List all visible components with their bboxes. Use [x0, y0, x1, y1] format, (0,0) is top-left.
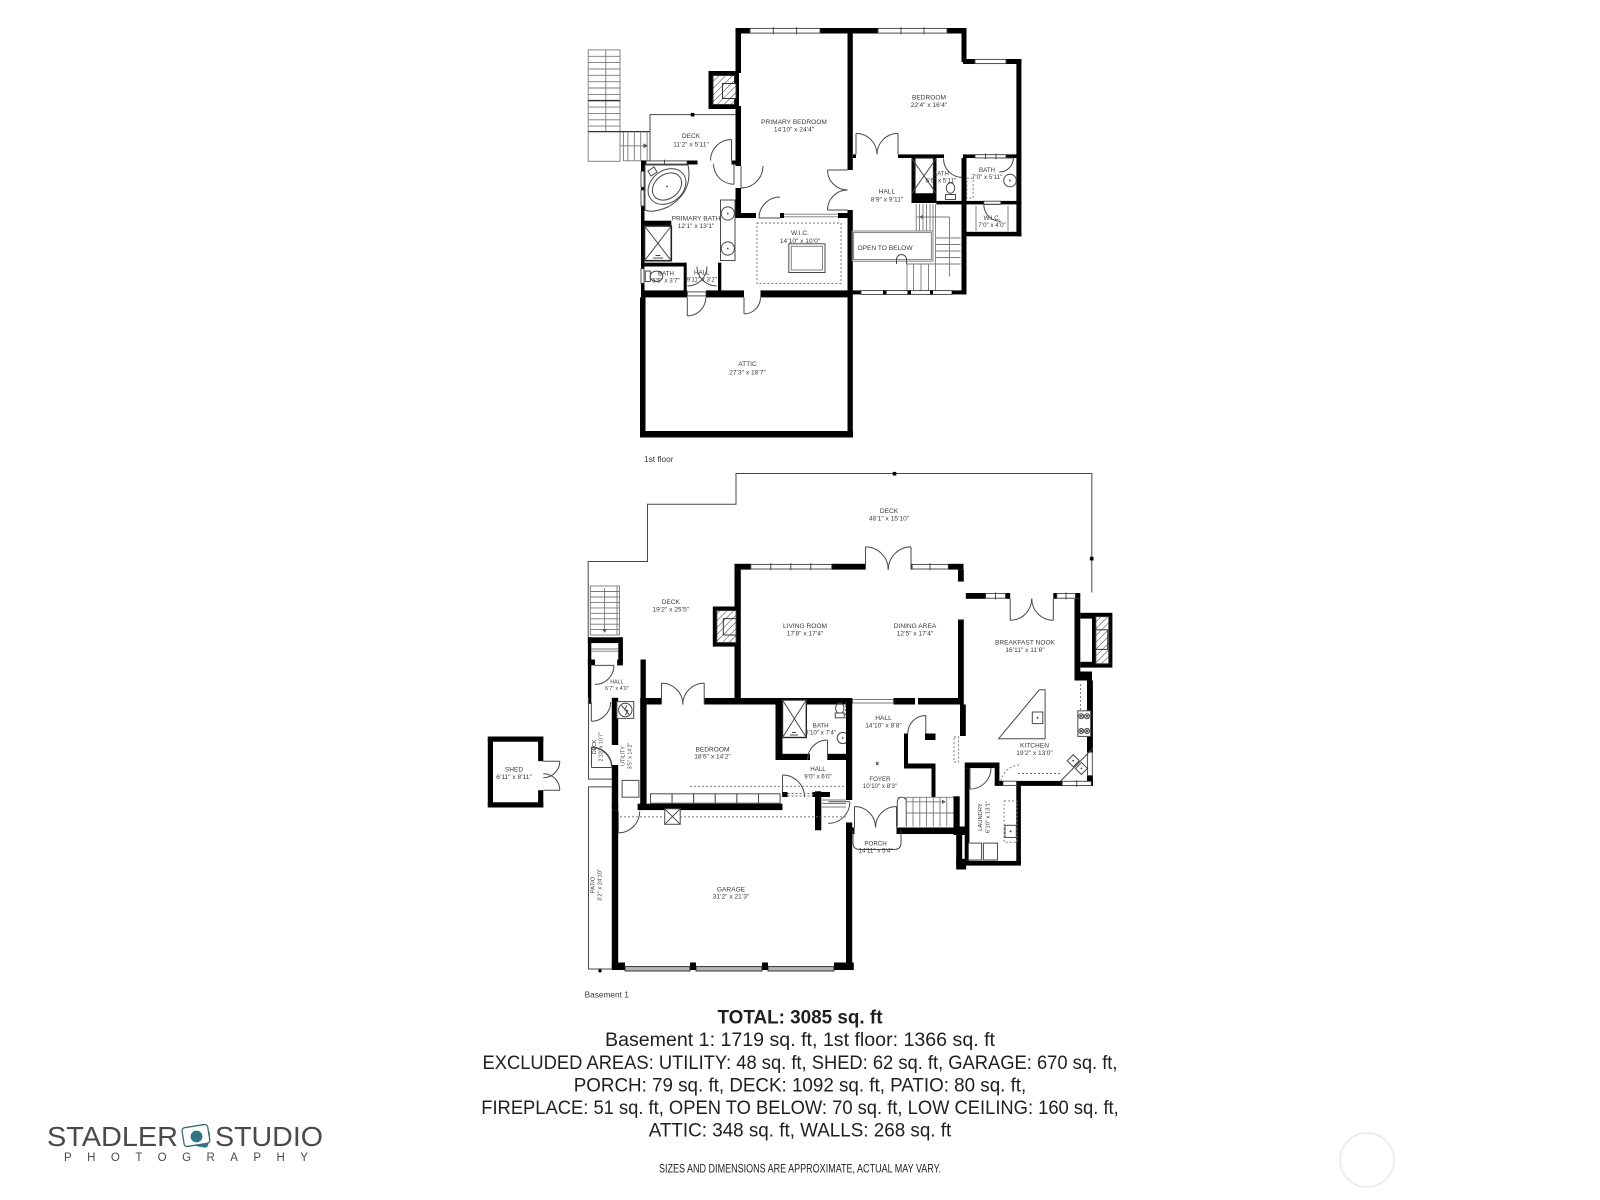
svg-text:BEDROOM: BEDROOM: [695, 746, 729, 753]
svg-text:27’3" x 18’7": 27’3" x 18’7": [729, 370, 766, 377]
svg-text:PORCH: 79 sq. ft, DECK: 1092 s: PORCH: 79 sq. ft, DECK: 1092 sq. ft, PAT…: [574, 1076, 1027, 1097]
svg-text:STUDIO: STUDIO: [215, 1121, 323, 1152]
svg-text:48’1" x 15’10": 48’1" x 15’10": [869, 515, 910, 522]
svg-text:9’0" x 6’0": 9’0" x 6’0": [804, 773, 831, 780]
svg-text:BATH: BATH: [813, 722, 829, 729]
svg-text:BEDROOM: BEDROOM: [912, 95, 946, 102]
svg-text:SHED: SHED: [505, 766, 524, 773]
svg-text:Basement 1: 1719 sq. ft, 1st f: Basement 1: 1719 sq. ft, 1st floor: 1366…: [605, 1030, 996, 1051]
svg-text:W.I.C.: W.I.C.: [984, 215, 1001, 222]
svg-text:W.I.C.: W.I.C.: [791, 230, 809, 237]
svg-text:18’6" x 14’2": 18’6" x 14’2": [694, 754, 731, 761]
svg-text:BATH: BATH: [658, 271, 674, 278]
svg-text:3’2" x 24’10": 3’2" x 24’10": [598, 869, 604, 901]
svg-text:19’2" x 25’5": 19’2" x 25’5": [653, 606, 690, 613]
svg-text:14’10" x 24’4": 14’10" x 24’4": [774, 126, 815, 133]
svg-text:16’11" x 11’6": 16’11" x 11’6": [1005, 647, 1045, 654]
svg-text:Basement 1: Basement 1: [585, 990, 630, 1000]
svg-text:LAUNDRY: LAUNDRY: [978, 803, 984, 831]
svg-text:6’11" x 8’11": 6’11" x 8’11": [496, 774, 532, 781]
svg-text:6’7" x 4’0": 6’7" x 4’0": [605, 686, 629, 692]
svg-text:EXCLUDED AREAS: UTILITY: 48 sq: EXCLUDED AREAS: UTILITY: 48 sq. ft, SHED…: [483, 1053, 1118, 1074]
svg-text:KITCHEN: KITCHEN: [1020, 743, 1049, 750]
svg-text:PATIO: PATIO: [591, 876, 597, 893]
svg-text:6’6" x 5’11": 6’6" x 5’11": [926, 178, 956, 185]
svg-text:PRIMARY BATH: PRIMARY BATH: [672, 216, 721, 223]
svg-text:14’10" x 8’8": 14’10" x 8’8": [865, 722, 902, 729]
svg-text:STADLER: STADLER: [47, 1121, 178, 1152]
svg-text:7’0" x 4’0": 7’0" x 4’0": [978, 222, 1005, 229]
svg-text:22’4" x 16’4": 22’4" x 16’4": [911, 102, 948, 109]
svg-text:BREAKFAST NOOK: BREAKFAST NOOK: [995, 640, 1056, 647]
svg-text:HALL: HALL: [810, 766, 826, 773]
svg-text:BATH: BATH: [979, 167, 995, 174]
svg-text:OPEN TO BELOW: OPEN TO BELOW: [857, 245, 913, 252]
svg-text:7’0" x 5’11": 7’0" x 5’11": [972, 174, 1002, 181]
svg-text:1st floor: 1st floor: [644, 454, 674, 464]
svg-text:10’10" x 8’3": 10’10" x 8’3": [863, 783, 897, 790]
svg-text:DECK: DECK: [682, 133, 701, 140]
svg-text:12’5" x 17’4": 12’5" x 17’4": [897, 630, 934, 637]
svg-text:ATTIC: ATTIC: [738, 361, 757, 368]
svg-text:FOYER: FOYER: [869, 776, 891, 783]
svg-text:GARAGE: GARAGE: [717, 886, 746, 893]
svg-text:PORCH: PORCH: [864, 840, 886, 847]
svg-text:19’2" x 13’0": 19’2" x 13’0": [1016, 750, 1053, 757]
svg-text:LIVING ROOM: LIVING ROOM: [783, 623, 827, 630]
svg-text:TOTAL: 3085 sq. ft: TOTAL: 3085 sq. ft: [718, 1008, 884, 1029]
svg-text:2’10" x 10’7": 2’10" x 10’7": [599, 732, 605, 762]
svg-text:31’2" x 21’3": 31’2" x 21’3": [713, 894, 750, 901]
svg-text:12’1" x 13’1": 12’1" x 13’1": [678, 223, 715, 230]
svg-text:14’10" x 10’0": 14’10" x 10’0": [780, 238, 821, 245]
svg-text:FIREPLACE: 51 sq. ft, OPEN TO: FIREPLACE: 51 sq. ft, OPEN TO BELOW: 70 …: [481, 1098, 1119, 1119]
svg-text:8’9" x 9’11": 8’9" x 9’11": [871, 196, 904, 203]
svg-text:8’10" x 7’4": 8’10" x 7’4": [805, 730, 836, 737]
svg-text:11’2" x 5’11": 11’2" x 5’11": [673, 142, 709, 149]
svg-text:DINING AREA: DINING AREA: [894, 623, 937, 630]
svg-text:BATH: BATH: [933, 170, 949, 177]
svg-text:DECK: DECK: [880, 508, 899, 515]
svg-text:14’11" x 5’4": 14’11" x 5’4": [859, 847, 893, 854]
svg-text:17’8" x 17’4": 17’8" x 17’4": [787, 630, 824, 637]
svg-text:6’10" x 13’1": 6’10" x 13’1": [986, 801, 992, 833]
svg-text:ATTIC: 348 sq. ft, WALLS: 268: ATTIC: 348 sq. ft, WALLS: 268 sq. ft: [649, 1121, 952, 1142]
svg-text:HALL: HALL: [694, 270, 710, 277]
svg-text:HALL: HALL: [879, 189, 896, 196]
svg-text:HALL: HALL: [610, 679, 623, 685]
svg-text:PRIMARY BEDROOM: PRIMARY BEDROOM: [761, 119, 827, 126]
svg-text:DECK: DECK: [662, 599, 681, 606]
svg-text:UTILITY: UTILITY: [621, 746, 627, 766]
svg-text:SIZES AND DIMENSIONS ARE APPRO: SIZES AND DIMENSIONS ARE APPROXIMATE, AC…: [659, 1162, 941, 1176]
svg-text:3’5" x 14’2": 3’5" x 14’2": [628, 743, 634, 770]
svg-text:HALL: HALL: [875, 715, 892, 722]
svg-text:5’5" x 3’7": 5’5" x 3’7": [652, 278, 679, 285]
